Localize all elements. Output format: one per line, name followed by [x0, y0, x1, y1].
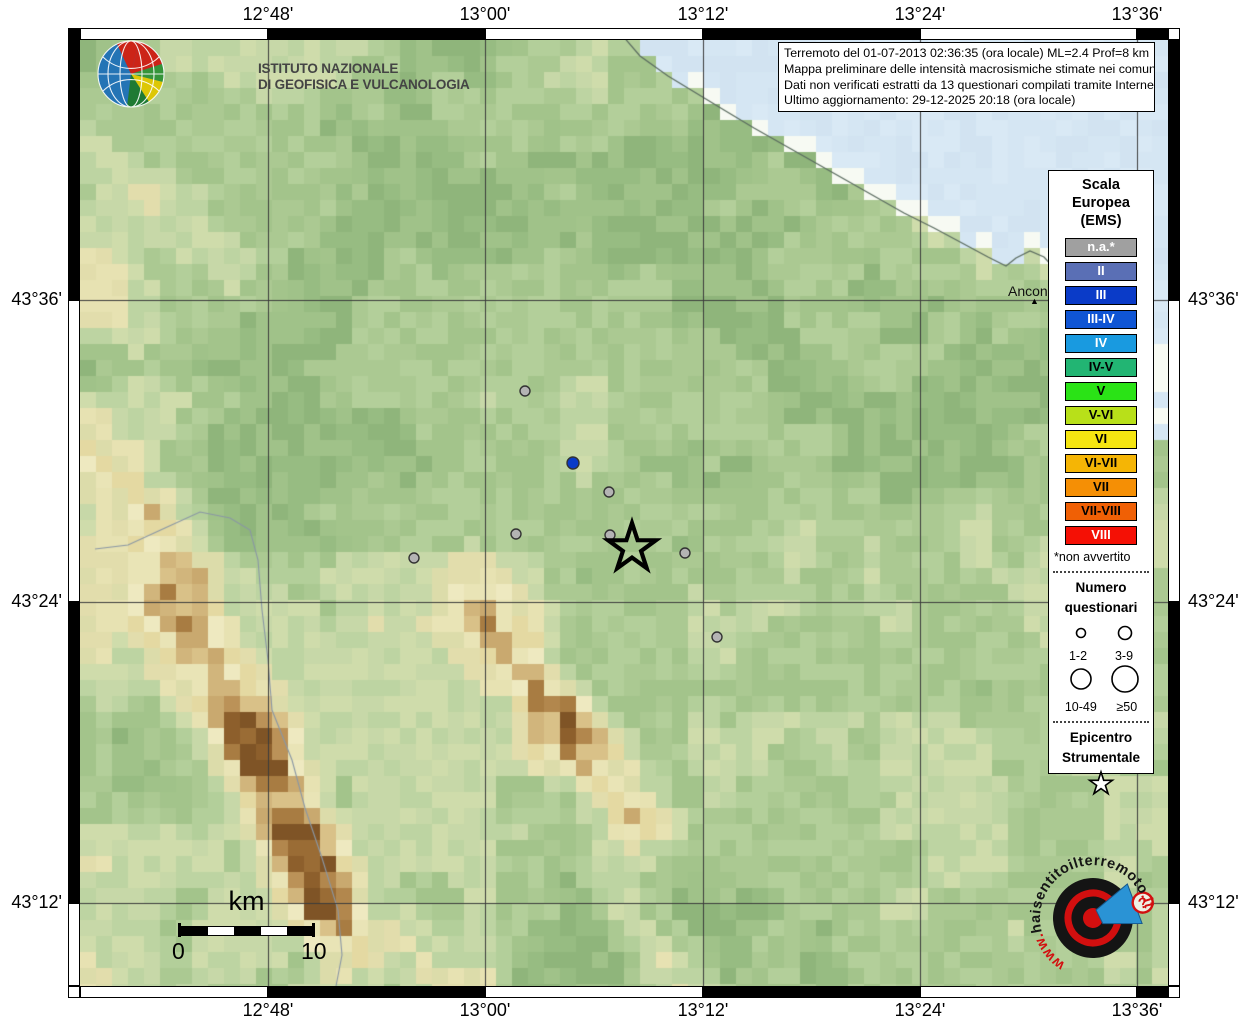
questionnaire-marker-III	[567, 457, 579, 469]
map-frame-segment	[68, 40, 80, 300]
event-info-line1: Terremoto del 01-07-2013 02:36:35 (ora l…	[784, 46, 1149, 62]
ingv-logo-globe-icon	[95, 38, 167, 110]
axis-label-bottom-4: 13°36'	[1092, 1000, 1182, 1021]
scalebar-cap-right	[312, 923, 315, 937]
axis-label-top-4: 13°36'	[1092, 4, 1182, 25]
questionnaire-size-label-3: 10-49	[1065, 700, 1097, 714]
ingv-name-line1: ISTITUTO NAZIONALE	[258, 61, 470, 77]
legend-title-line2: Europea	[1049, 194, 1153, 212]
intensity-swatch-III: III	[1065, 286, 1137, 305]
questionnaire-size-icons-large	[1051, 663, 1151, 695]
intensity-swatch-V-VI: V-VI	[1065, 406, 1137, 425]
intensity-swatch-IV: IV	[1065, 334, 1137, 353]
intensity-swatch-list: n.a.*IIIIIIII-IVIVIV-VVV-VIVIVI-VIIVIIVI…	[1049, 238, 1153, 545]
event-info-line3: Dati non verificati estratti da 13 quest…	[784, 78, 1149, 94]
questionnaire-size-label-1: 1-2	[1069, 649, 1087, 663]
axis-label-left-2: 43°12'	[2, 892, 62, 913]
axis-label-top-2: 13°12'	[658, 4, 748, 25]
event-info-box: Terremoto del 01-07-2013 02:36:35 (ora l…	[778, 42, 1155, 112]
map-frame-segment	[80, 986, 268, 998]
axis-label-bottom-2: 13°12'	[658, 1000, 748, 1021]
axis-label-bottom-0: 12°48'	[223, 1000, 313, 1021]
legend-separator-2	[1053, 721, 1149, 723]
questionnaire-size-icons-small	[1051, 618, 1151, 644]
scalebar-unit-label: km	[180, 886, 313, 917]
questionnaire-marker-na	[712, 632, 722, 642]
map-frame-segment	[703, 986, 920, 998]
scalebar-end-label: 10	[301, 938, 327, 965]
intensity-swatch-IV-V: IV-V	[1065, 358, 1137, 377]
intensity-swatch-VIII: VIII	[1065, 526, 1137, 545]
intensity-swatch-V: V	[1065, 382, 1137, 401]
questionnaire-size-label-4: ≥50	[1116, 700, 1137, 714]
axis-label-bottom-3: 13°24'	[875, 1000, 965, 1021]
map-frame-segment	[920, 986, 1137, 998]
intensity-markers-layer	[80, 40, 1168, 986]
legend-title-line3: (EMS)	[1049, 212, 1153, 230]
intensity-swatch-VII-VIII: VII-VIII	[1065, 502, 1137, 521]
axis-label-left-1: 43°24'	[2, 591, 62, 612]
map-figure: ISTITUTO NAZIONALE DI GEOFISICA E VULCAN…	[0, 0, 1254, 1024]
intensity-swatch-VI-VII: VI-VII	[1065, 454, 1137, 473]
axis-label-top-1: 13°00'	[440, 4, 530, 25]
haisentito-watermark-logo: ? www.haisentitoilterremoto.it	[1022, 846, 1164, 988]
axis-label-top-3: 13°24'	[875, 4, 965, 25]
scalebar-cap-left	[178, 923, 181, 937]
map-frame-segment	[485, 28, 703, 40]
epicenter-star-icon	[1051, 768, 1151, 802]
questionnaire-title-line1: Numero	[1049, 578, 1153, 598]
map-frame-segment	[68, 903, 80, 986]
map-frame-segment	[1137, 986, 1168, 998]
questionnaire-marker-na	[520, 386, 530, 396]
axis-label-right-1: 43°24'	[1188, 591, 1239, 612]
questionnaire-marker-na	[511, 529, 521, 539]
questionnaire-title-line2: questionari	[1049, 598, 1153, 618]
legend-title-line1: Scala	[1049, 171, 1153, 194]
axis-label-right-2: 43°12'	[1188, 892, 1239, 913]
legend-separator	[1053, 571, 1149, 573]
epicenter-star-marker	[608, 523, 656, 568]
event-info-line2: Mappa preliminare delle intensità macros…	[784, 62, 1149, 78]
map-frame-segment	[703, 28, 920, 40]
legend-footnote: *non avvertito	[1049, 550, 1153, 564]
map-frame-segment	[1137, 28, 1168, 40]
epicenter-title-line2: Strumentale	[1049, 748, 1153, 768]
intensity-swatch-II: II	[1065, 262, 1137, 281]
ingv-name-line2: DI GEOFISICA E VULCANOLOGIA	[258, 77, 470, 93]
map-frame-segment	[68, 300, 80, 602]
questionnaire-marker-na	[604, 487, 614, 497]
intensity-swatch-n.a.*: n.a.*	[1065, 238, 1137, 257]
questionnaire-marker-na	[409, 553, 419, 563]
map-frame-segment	[68, 986, 80, 998]
questionnaire-marker-na	[680, 548, 690, 558]
ingv-logo-text: ISTITUTO NAZIONALE DI GEOFISICA E VULCAN…	[258, 61, 470, 93]
map-frame-segment	[68, 28, 80, 40]
event-info-line4: Ultimo aggiornamento: 29-12-2025 20:18 (…	[784, 93, 1149, 109]
intensity-swatch-VII: VII	[1065, 478, 1137, 497]
map-frame-segment	[68, 602, 80, 903]
map-frame-segment	[1168, 40, 1180, 300]
questionnaire-size-label-2: 3-9	[1115, 649, 1133, 663]
axis-label-left-0: 43°36'	[2, 289, 62, 310]
intensity-swatch-VI: VI	[1065, 430, 1137, 449]
city-marker-icon: ▲	[1030, 296, 1039, 306]
scalebar-start-label: 0	[172, 938, 185, 965]
map-frame-segment	[1168, 300, 1180, 602]
legend-panel: Scala Europea (EMS) n.a.*IIIIIIII-IVIVIV…	[1048, 170, 1154, 774]
map-frame-segment	[1168, 986, 1180, 998]
axis-label-top-0: 12°48'	[223, 4, 313, 25]
map-frame-segment	[268, 986, 485, 998]
map-frame-segment	[268, 28, 485, 40]
map-frame-segment	[1168, 903, 1180, 986]
map-frame-segment	[920, 28, 1137, 40]
epicenter-title-line1: Epicentro	[1049, 728, 1153, 748]
axis-label-right-0: 43°36'	[1188, 289, 1239, 310]
scalebar	[180, 926, 315, 936]
map-frame-segment	[485, 986, 703, 998]
map-frame-segment	[1168, 602, 1180, 903]
map-frame-segment	[1168, 28, 1180, 40]
map-frame-segment	[80, 28, 268, 40]
intensity-swatch-III-IV: III-IV	[1065, 310, 1137, 329]
axis-label-bottom-1: 13°00'	[440, 1000, 530, 1021]
